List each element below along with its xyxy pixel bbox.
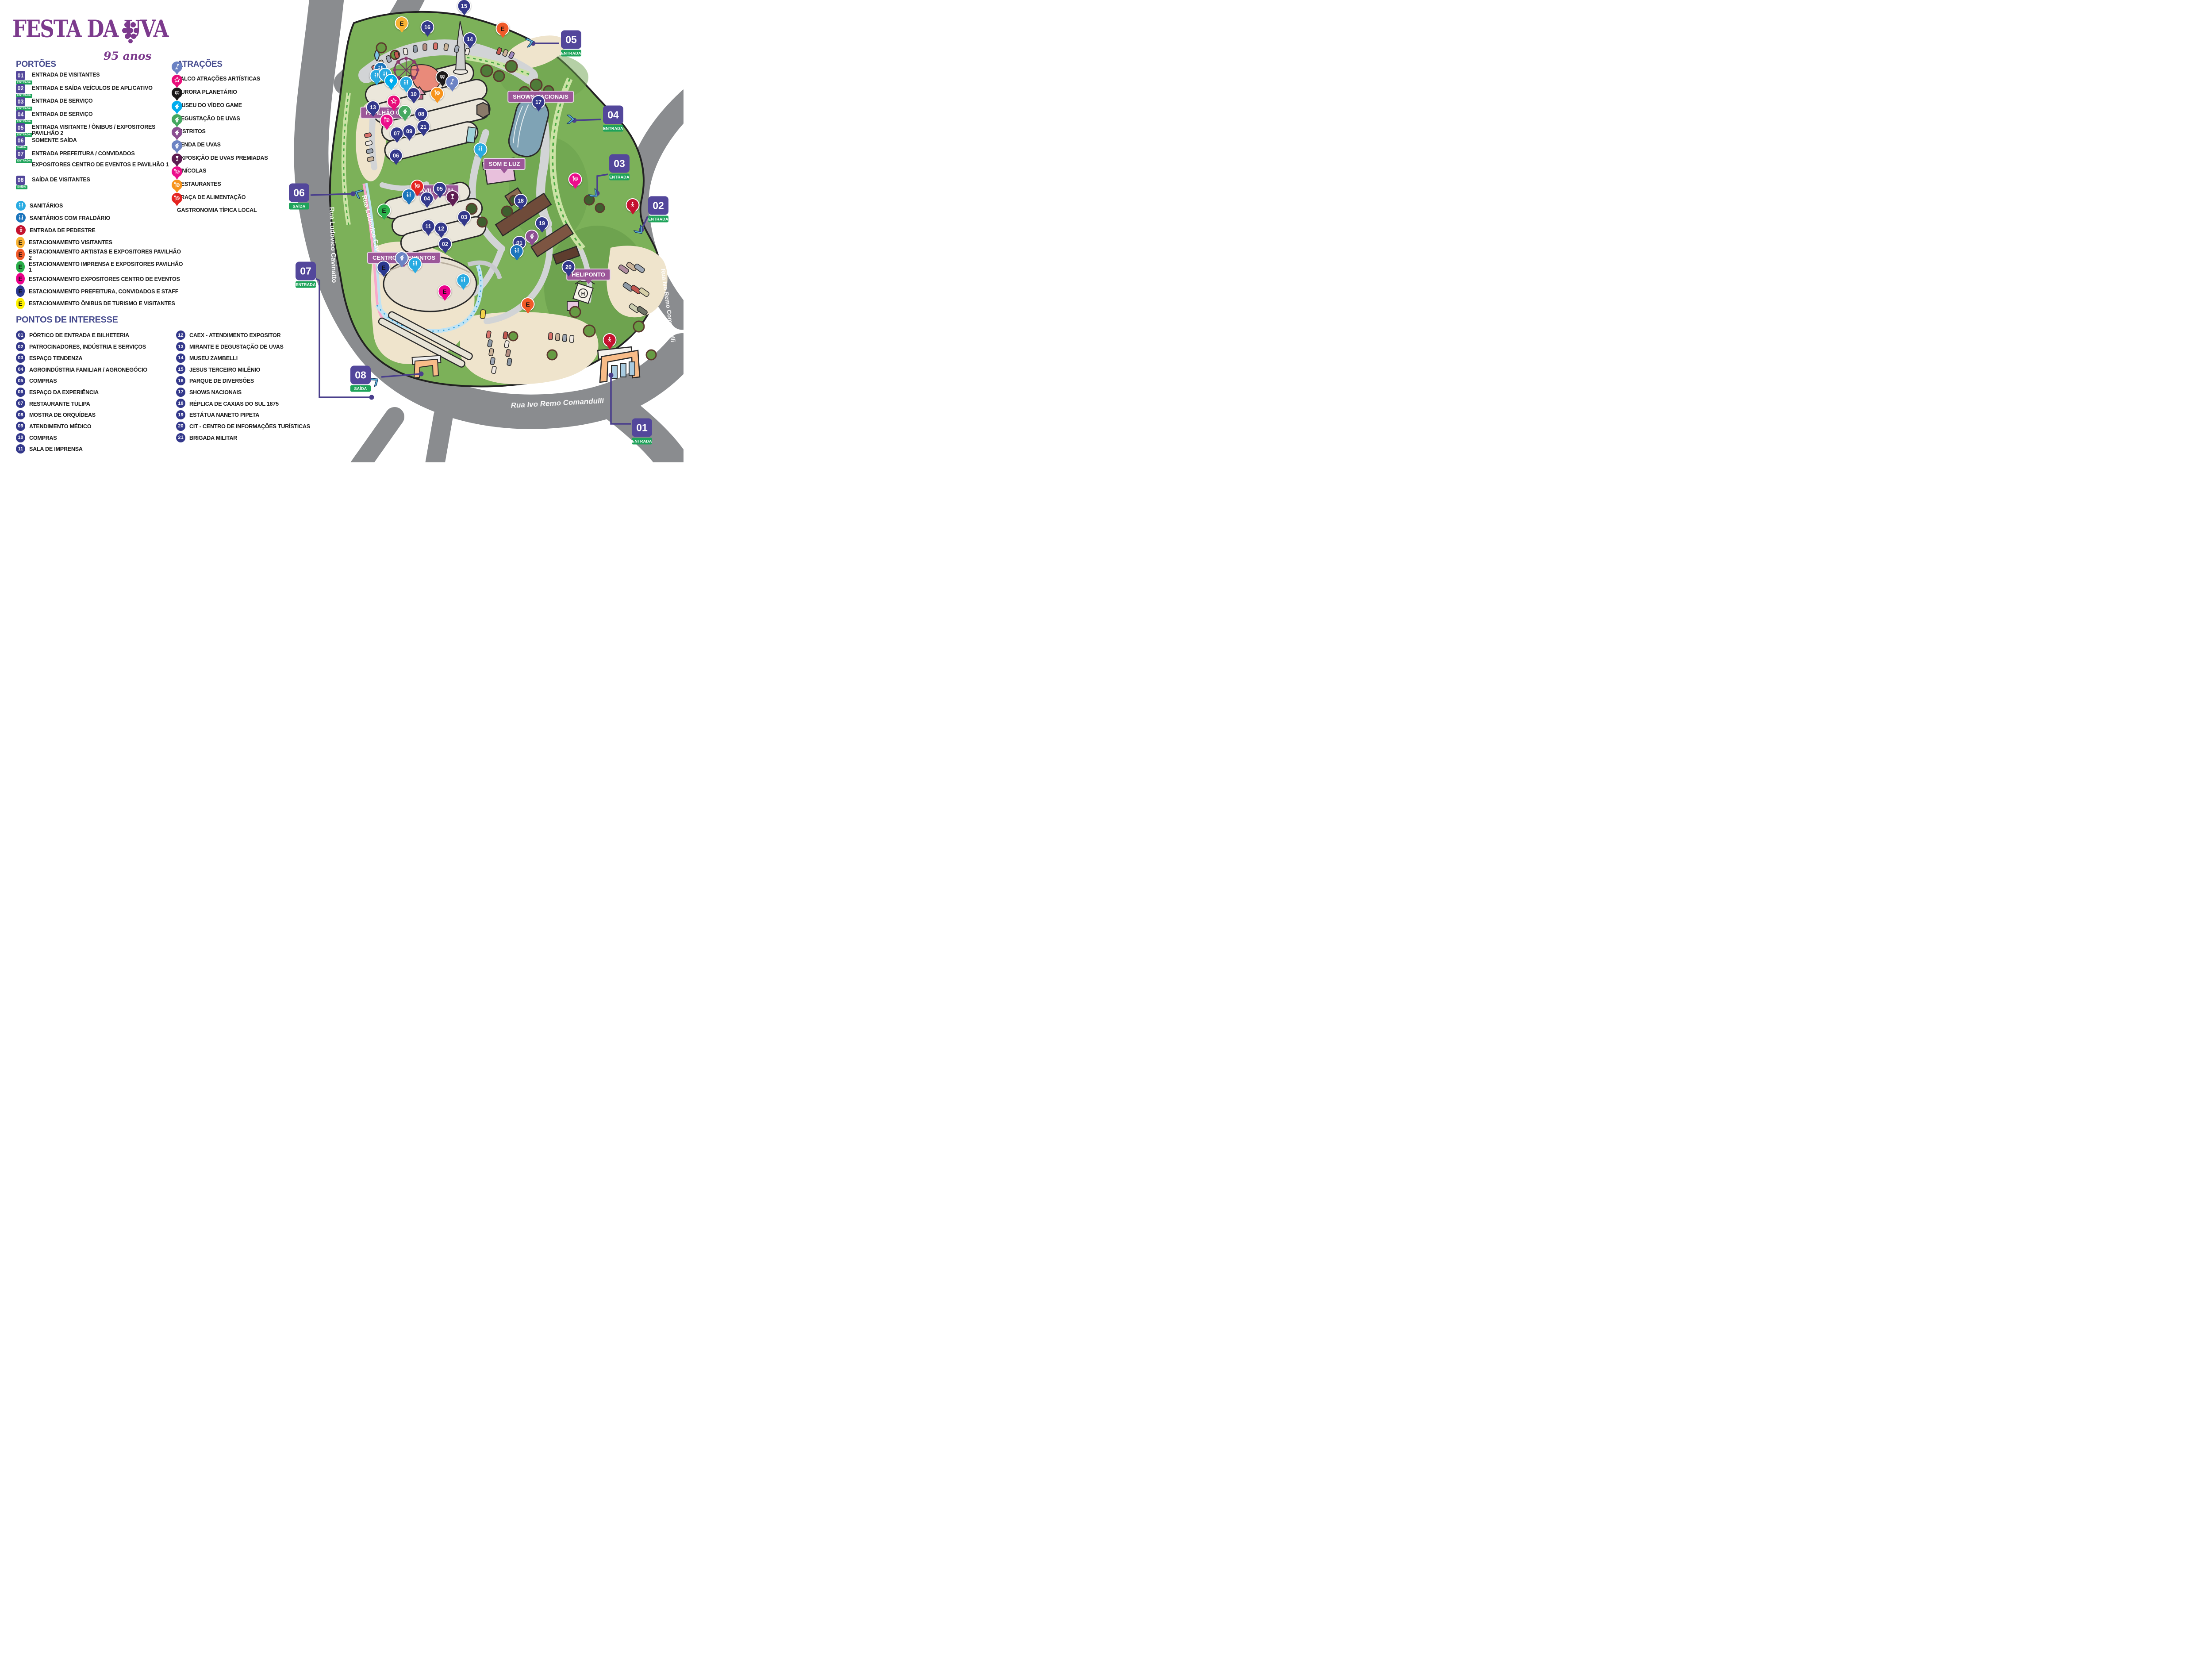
wc-icon (477, 146, 484, 154)
grapes-icon (528, 232, 535, 241)
arcade-icon (172, 88, 182, 98)
gate-legend-item: 08 SAÍDA SAÍDA DE VISITANTES (16, 176, 175, 189)
grapes-icon (172, 114, 182, 125)
poi-legend-item: 12 CAEX - ATENDIMENTO EXPOSITOR (176, 330, 318, 341)
gate-number: 05 (561, 31, 581, 49)
poi-number: 16 (176, 376, 185, 385)
poi-legend-item: 13 MIRANTE E DEGUSTAÇÃO DE UVAS (176, 341, 318, 353)
parking-icon: E (381, 264, 385, 271)
service-label: SANITÁRIOS (30, 202, 63, 209)
map-pin (398, 105, 412, 124)
service-label: ENTRADA DE PEDESTRE (30, 227, 96, 234)
poi-number: 08 (16, 410, 25, 419)
star-icon (390, 97, 398, 106)
poi-number: 17 (176, 388, 185, 397)
poi-label: JESUS TERCEIRO MILÊNIO (189, 366, 260, 373)
poi-number: 20 (176, 422, 185, 431)
map-pin (603, 333, 617, 353)
gate-tag: ENTRADA (648, 216, 668, 223)
pontos-header: PONTOS DE INTERESSE (16, 315, 118, 325)
poi-number: 06 (16, 388, 25, 397)
gate-number-badge: 02 (16, 84, 25, 93)
parking-icon: E (399, 20, 403, 27)
wc-icon (412, 260, 419, 268)
portoes-header: PORTÕES (16, 60, 56, 69)
poi-legend-item: 18 RÉPLICA DE CAXIAS DO SUL 1875 (176, 398, 318, 409)
gate-tag: ENTRADA (561, 50, 581, 57)
poi-number: 13 (176, 342, 185, 351)
service-label: SANITÁRIOS COM FRALDÁRIO (30, 214, 110, 222)
service-legend-item: E ESTACIONAMENTO VISITANTES (16, 236, 184, 249)
map-pin (402, 188, 416, 208)
poi-number: 14 (176, 354, 185, 363)
poi-label: ATENDIMENTO MÉDICO (29, 423, 91, 430)
attraction-legend-item: PALCO ATRAÇÕES ARTÍSTICAS (177, 72, 310, 85)
E-icon: E (16, 273, 25, 284)
gate-badge: 04 ENTRADA (603, 106, 623, 132)
attraction-label: EXPOSIÇÃO DE UVAS PREMIADAS (177, 154, 268, 161)
gate-label: SOMENTE SAÍDA (32, 137, 77, 143)
gate-label: ENTRADA DE VISITANTES (32, 72, 100, 78)
poi-label: PATROCINADORES, INDÚSTRIA E SERVIÇOS (29, 343, 146, 350)
service-label: ESTACIONAMENTO ÔNIBUS DE TURISMO E VISIT… (29, 300, 175, 307)
poi-legend-item: 07 RESTAURANTE TULIPA (16, 398, 171, 409)
map-pin (395, 251, 409, 271)
gate-number: 02 (648, 196, 668, 215)
poi-label: BRIGADA MILITAR (189, 434, 237, 442)
gate-legend-item: 04 ENTRADA ENTRADA DE SERVIÇO (16, 110, 175, 123)
service-label: ESTACIONAMENTO VISITANTES (29, 238, 112, 246)
E-icon: E (16, 237, 25, 248)
map-pin: E (521, 297, 535, 317)
service-legend-item: E ESTACIONAMENTO EXPOSITORES CENTRO DE E… (16, 273, 184, 285)
gate-legend-item: 02 ENTRADA ENTRADA E SAÍDA VEÍCULOS DE A… (16, 84, 175, 97)
grapes-logo-icon (121, 20, 140, 43)
poi-legend-item: 16 PARQUE DE DIVERSÕES (176, 375, 318, 387)
gate-tag: SAÍDA (350, 385, 371, 392)
gate-legend-item: 05 ENTRADA ENTRADA VISITANTE / ÔNIBUS / … (16, 123, 175, 136)
gate-badge: 05 ENTRADA (561, 31, 581, 57)
attraction-label: AURORA PLANETÁRIO (177, 88, 237, 96)
logo: FESTA DA UVA 95 anos (12, 15, 163, 64)
poi-label: CIT - CENTRO DE INFORMAÇÕES TURÍSTICAS (189, 423, 310, 430)
gate-label: ENTRADA PREFEITURA / CONVIDADOS (32, 150, 134, 157)
attraction-label: PRAÇA DE ALIMENTAÇÃO (177, 193, 246, 201)
pontos-list-left: 01 PÓRTICO DE ENTRADA E BILHETERIA 02 PA… (16, 330, 171, 455)
service-legend-item: E ESTACIONAMENTO ARTISTAS E EXPOSITORES … (16, 248, 184, 261)
service-legend-item: E ESTACIONAMENTO IMPRENSA E EXPOSITORES … (16, 261, 184, 273)
poi-label: MOSTRA DE ORQUÍDEAS (29, 411, 96, 419)
walk-icon (16, 225, 26, 235)
wc-icon (460, 277, 467, 284)
gate-label: ENTRADA DE SERVIÇO (32, 98, 92, 104)
pontos-list-right: 12 CAEX - ATENDIMENTO EXPOSITOR 13 MIRAN… (176, 330, 318, 443)
poi-number: 03 (16, 354, 25, 363)
poi-number: 02 (16, 342, 25, 351)
attraction-label: RESTAURANTES (177, 180, 221, 188)
poi-label: CAEX - ATENDIMENTO EXPOSITOR (189, 331, 280, 339)
map-pin: 06 (389, 149, 403, 168)
service-legend-item: E ESTACIONAMENTO ÔNIBUS DE TURISMO E VIS… (16, 297, 184, 310)
gate-badge: 01 ENTRADA (632, 419, 652, 445)
poi-label: COMPRAS (29, 377, 57, 384)
mic-icon (172, 61, 182, 72)
gate-tag: ENTRADA (296, 281, 316, 288)
gate-number-badge: 04 (16, 110, 25, 119)
grapes-icon (398, 254, 405, 262)
monument (466, 127, 476, 143)
poi-number: 04 (16, 365, 25, 374)
gate-legend-item: 06 SAÍDA SOMENTE SAÍDA (16, 136, 175, 150)
poi-number: 11 (16, 444, 25, 453)
gate-number-badge: 06 (16, 136, 25, 146)
gate-badge: 07 ENTRADA (296, 262, 316, 288)
walk-icon (630, 201, 636, 209)
gate-number-badge: 03 (16, 97, 25, 106)
E-icon: E (16, 285, 25, 297)
map-pin: E (438, 284, 452, 304)
gate-label-line2: EXPOSITORES CENTRO DE EVENTOS E PAVILHÃO… (32, 162, 169, 168)
parking-icon: E (442, 288, 446, 295)
poi-legend-item: 17 SHOWS NACIONAIS (176, 386, 318, 398)
wine-icon (449, 193, 456, 201)
map-pin (457, 273, 470, 293)
gate-number-badge: 08 (16, 176, 25, 185)
gate-number-badge: 05 (16, 123, 25, 132)
map-pin: 03 (457, 210, 471, 230)
poi-number: 09 (16, 422, 25, 431)
map-area-label: SOM E LUZ (484, 158, 526, 170)
gate-number: 06 (289, 184, 309, 202)
poi-label: SHOWS NACIONAIS (189, 388, 242, 396)
poi-label: SALA DE IMPRENSA (29, 445, 83, 453)
map-pin: 20 (562, 260, 576, 280)
walk-icon (607, 336, 613, 344)
gate-badge: 08 SAÍDA (350, 366, 371, 392)
gazebo (477, 103, 489, 118)
mic-icon (449, 78, 456, 86)
map-pin: E (377, 261, 391, 280)
attraction-legend-item: EXPOSIÇÃO DE UVAS PREMIADAS (177, 151, 310, 164)
attraction-label: GASTRONOMIA TÍPICA LOCAL (177, 206, 257, 214)
grapes-icon (172, 127, 182, 138)
poi-number: 15 (176, 365, 185, 374)
parking-icon: E (382, 207, 386, 214)
attraction-legend-item: DEGUSTAÇÃO DE UVAS (177, 111, 310, 125)
poi-number: 21 (176, 433, 185, 442)
attraction-legend-item: MUSEU DO VÍDEO GAME (177, 98, 310, 111)
poi-label: ESTÁTUA NANETO PIPETA (189, 411, 259, 419)
poi-number: 12 (176, 330, 185, 340)
poi-number: 18 (176, 399, 185, 408)
map-pin (474, 142, 488, 162)
poi-label: PÓRTICO DE ENTRADA E BILHETERIA (29, 331, 129, 339)
gate-badge: 03 ENTRADA (609, 154, 630, 181)
logo-anos: 95 anos (104, 50, 152, 62)
map-pin: 21 (417, 120, 430, 139)
gate-badge: 06 SAÍDA (289, 184, 309, 210)
E-icon: E (16, 261, 25, 273)
poi-legend-item: 08 MOSTRA DE ORQUÍDEAS (16, 409, 171, 421)
dining-icon (172, 180, 182, 190)
attraction-legend-item: VENDA DE UVAS (177, 138, 310, 151)
poi-legend-item: 01 PÓRTICO DE ENTRADA E BILHETERIA (16, 330, 171, 341)
poi-legend-item: 14 MUSEU ZAMBELLI (176, 352, 318, 364)
map-pin (408, 257, 422, 277)
atracoes-header: ATRAÇÕES (177, 60, 223, 69)
parking-icon: E (526, 301, 530, 308)
gate-number: 03 (609, 154, 630, 173)
gate-tag: ENTRADA (609, 174, 630, 181)
service-legend-item: ENTRADA DE PEDESTRE (16, 224, 184, 236)
gate-number: 07 (296, 262, 316, 281)
gate-direction-tag: ENTRADA (16, 159, 32, 163)
gate-number-badge: 07 (16, 150, 25, 159)
map-pin: 18 (514, 194, 528, 213)
map-pin: 16 (421, 20, 434, 40)
poi-legend-item: 03 ESPAÇO TENDENZA (16, 352, 171, 364)
gate-direction-tag: SAÍDA (16, 185, 27, 189)
grapes-icon (401, 108, 408, 116)
poi-legend-item: 20 CIT - CENTRO DE INFORMAÇÕES TURÍSTICA… (176, 421, 318, 432)
gate-legend-item: 07 ENTRADA ENTRADA PREFEITURA / CONVIDAD… (16, 150, 175, 176)
poi-legend-item: 21 BRIGADA MILITAR (176, 432, 318, 443)
poi-number: 05 (16, 376, 25, 385)
E-icon: E (16, 249, 25, 260)
poi-legend-item: 09 ATENDIMENTO MÉDICO (16, 421, 171, 432)
map-pin: 17 (532, 95, 545, 115)
poi-legend-item: 15 JESUS TERCEIRO MILÊNIO (176, 364, 318, 375)
poi-legend-item: 02 PATROCINADORES, INDÚSTRIA E SERVIÇOS (16, 341, 171, 353)
service-label: ESTACIONAMENTO ARTISTAS E EXPOSITORES PA… (29, 248, 184, 261)
map-pin: E (395, 16, 409, 36)
festa-da-uva-map-page: H (0, 0, 684, 462)
dining-icon (434, 89, 441, 98)
poi-label: MIRANTE E DEGUSTAÇÃO DE UVAS (189, 343, 284, 350)
gate-badge: 02 ENTRADA (648, 196, 668, 223)
wc_baby-icon (16, 213, 26, 223)
attraction-legend-item: DISTRITOS (177, 125, 310, 138)
map-pin (445, 75, 459, 95)
map-pin (446, 190, 460, 210)
gate-tag: ENTRADA (632, 438, 652, 445)
attraction-label: VENDA DE UVAS (177, 141, 221, 148)
logo-title: FESTA DA UVA (12, 15, 168, 43)
poi-number: 07 (16, 399, 25, 408)
map-pin: 15 (457, 0, 471, 19)
gate-number-badge: 01 (16, 71, 25, 80)
attraction-label: PALCO ATRAÇÕES ARTÍSTICAS (177, 75, 260, 82)
poi-label: AGROINDÚSTRIA FAMILIAR / AGRONEGÓCIO (29, 366, 147, 373)
poi-legend-item: 11 SALA DE IMPRENSA (16, 443, 171, 455)
service-label: ESTACIONAMENTO IMPRENSA E EXPOSITORES PA… (29, 260, 184, 274)
map-pin: 09 (403, 124, 416, 144)
arcade-icon (439, 73, 446, 81)
map-pin: E (377, 204, 391, 223)
dining-icon (572, 175, 579, 184)
gate-number: 01 (632, 419, 652, 437)
map-pin (430, 87, 444, 106)
map-pin (384, 74, 398, 93)
wc_baby-icon (406, 192, 412, 200)
poi-legend-item: 04 AGROINDÚSTRIA FAMILIAR / AGRONEGÓCIO (16, 364, 171, 375)
map-pin: 13 (366, 100, 380, 120)
poi-label: COMPRAS (29, 434, 57, 442)
map-pin (380, 114, 394, 133)
map-pin (399, 76, 413, 96)
map-pin: 14 (463, 32, 477, 52)
poi-label: RESTAURANTE TULIPA (29, 400, 90, 407)
service-label: ESTACIONAMENTO PREFEITURA, CONVIDADOS E … (29, 288, 178, 295)
service-legend-item: SANITÁRIOS (16, 200, 184, 212)
attraction-legend-item: VINÍCOLAS (177, 164, 310, 177)
gate-number: 08 (350, 366, 371, 384)
wine-icon (172, 154, 182, 164)
gate-number: 04 (603, 106, 623, 124)
services-list: SANITÁRIOS SANITÁRIOS COM FRALDÁRIO ENTR… (16, 200, 184, 309)
grapes-icon (172, 140, 182, 151)
parking-icon: E (500, 25, 504, 32)
gate-label: ENTRADA DE SERVIÇO (32, 111, 92, 117)
wc-icon (16, 201, 26, 211)
portoes-list: 01 ENTRADA ENTRADA DE VISITANTES 02 ENTR… (16, 71, 175, 188)
grapes-icon (388, 77, 395, 85)
attraction-label: MUSEU DO VÍDEO GAME (177, 101, 242, 109)
attraction-label: DEGUSTAÇÃO DE UVAS (177, 115, 240, 122)
poi-label: MUSEU ZAMBELLI (189, 354, 238, 362)
poi-label: ESPAÇO TENDENZA (29, 354, 82, 362)
map-pin (510, 244, 524, 264)
service-legend-item: E ESTACIONAMENTO PREFEITURA, CONVIDADOS … (16, 285, 184, 297)
gate-tag: SAÍDA (289, 203, 309, 210)
poi-label: ESPAÇO DA EXPERIÊNCIA (29, 388, 99, 396)
wc-icon (403, 79, 410, 87)
map-pin: 02 (438, 237, 452, 257)
map-pin (525, 230, 539, 249)
map-pin: 05 (433, 182, 447, 201)
E-icon: E (16, 298, 25, 309)
poi-legend-item: 10 COMPRAS (16, 432, 171, 443)
poi-label: RÉPLICA DE CAXIAS DO SUL 1875 (189, 400, 279, 407)
poi-number: 19 (176, 410, 185, 419)
gate-label: SAÍDA DE VISITANTES (32, 177, 90, 183)
gate-label: ENTRADA E SAÍDA VEÍCULOS DE APLICATIVO (32, 85, 153, 91)
attraction-legend-item: AURORA PLANETÁRIO (177, 85, 310, 99)
map-pin (568, 173, 582, 192)
poi-legend-item: 06 ESPAÇO DA EXPERIÊNCIA (16, 386, 171, 398)
dining-icon (172, 166, 182, 177)
star-icon (172, 75, 182, 85)
wc_baby-icon (514, 247, 520, 255)
gate-legend-item: 01 ENTRADA ENTRADA DE VISITANTES (16, 71, 175, 84)
map-pin (626, 198, 640, 218)
gate-tag: ENTRADA (603, 125, 623, 132)
poi-legend-item: 05 COMPRAS (16, 375, 171, 387)
poi-number: 10 (16, 433, 25, 442)
gate-legend-item: 03 ENTRADA ENTRADA DE SERVIÇO (16, 97, 175, 110)
poi-legend-item: 19 ESTÁTUA NANETO PIPETA (176, 409, 318, 421)
gate-arrow-icon (565, 114, 576, 127)
gate-label: ENTRADA VISITANTE / ÔNIBUS / EXPOSITORES… (32, 124, 155, 136)
svg-text:H: H (581, 291, 585, 297)
dining-icon (383, 116, 390, 125)
grapes-icon (172, 101, 182, 111)
map-pin: 11 (422, 219, 435, 239)
map-pin: E (496, 22, 510, 41)
poi-label: PARQUE DE DIVERSÕES (189, 377, 254, 384)
service-label: ESTACIONAMENTO EXPOSITORES CENTRO DE EVE… (29, 275, 180, 283)
service-legend-item: SANITÁRIOS COM FRALDÁRIO (16, 212, 184, 224)
poi-number: 01 (16, 330, 25, 340)
